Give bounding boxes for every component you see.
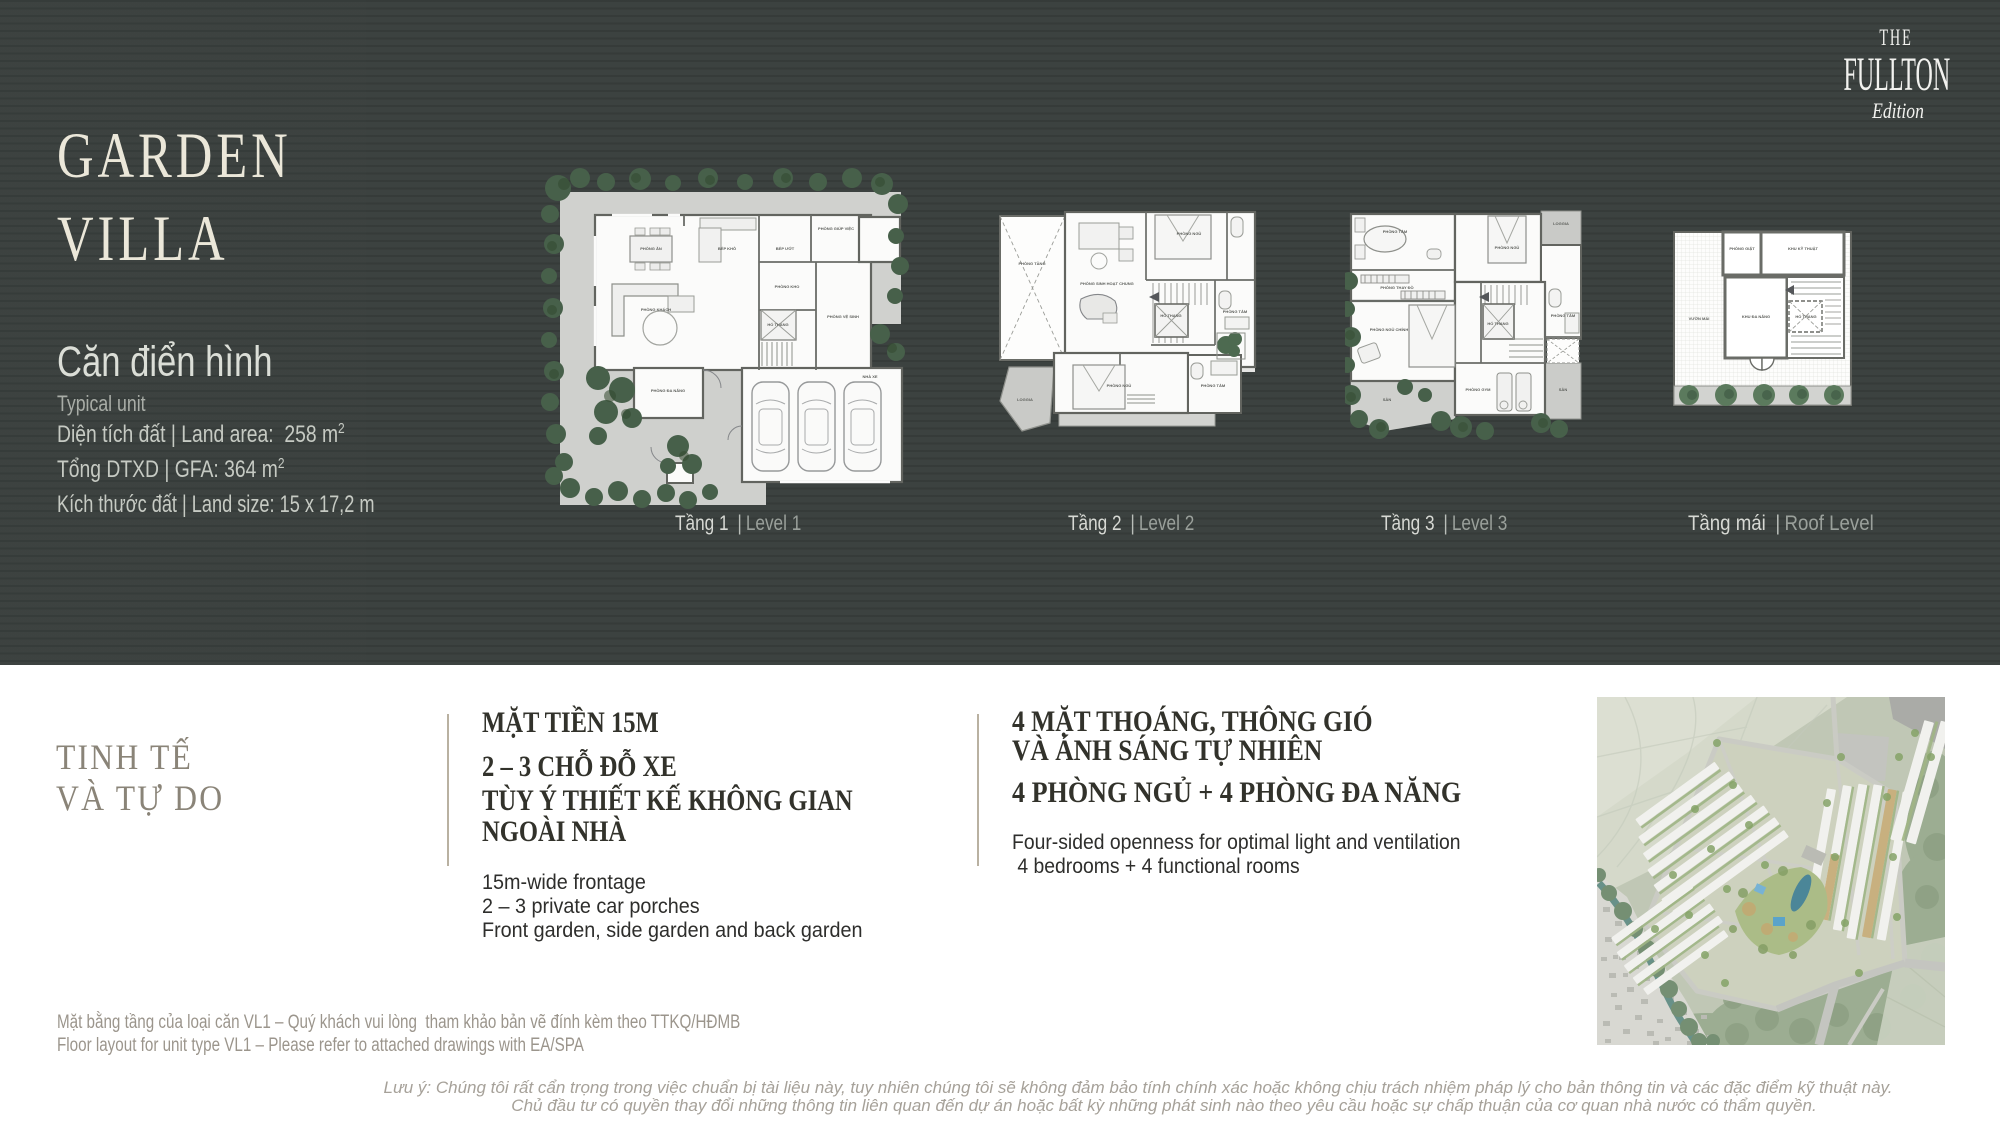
svg-text:PHÒNG GYM: PHÒNG GYM	[1466, 387, 1492, 392]
svg-text:NHÀ XE: NHÀ XE	[862, 374, 877, 379]
svg-text:PHÒNG NGỦ: PHÒNG NGỦ	[1177, 231, 1202, 236]
svg-text:PHÒNG TẮM: PHÒNG TẮM	[1223, 309, 1248, 314]
svg-text:PHÒNG NGỦ: PHÒNG NGỦ	[1495, 245, 1520, 250]
svg-text:PHÒNG ĐA NĂNG: PHÒNG ĐA NĂNG	[651, 388, 685, 393]
svg-text:PHÒNG NGỦ: PHÒNG NGỦ	[1107, 383, 1132, 388]
svg-text:LOGGIA: LOGGIA	[1017, 397, 1033, 402]
svg-text:KHU KỸ THUẬT: KHU KỸ THUẬT	[1788, 246, 1819, 251]
svg-text:HỐ THANG: HỐ THANG	[1160, 313, 1181, 318]
svg-text:PHÒNG GIẶT: PHÒNG GIẶT	[1729, 246, 1755, 251]
svg-text:PHÒNG THAY ĐỒ: PHÒNG THAY ĐỒ	[1380, 285, 1413, 290]
svg-text:KHU ĐA NĂNG: KHU ĐA NĂNG	[1742, 314, 1770, 319]
svg-text:HỐ THANG: HỐ THANG	[1487, 321, 1508, 326]
svg-text:BẾP KHÔ: BẾP KHÔ	[718, 246, 736, 251]
svg-text:PHÒNG TẦNG: PHÒNG TẦNG	[1018, 261, 1045, 266]
svg-text:VƯỜN MÁI: VƯỜN MÁI	[1689, 316, 1710, 321]
svg-text:PHÒNG VỆ SINH: PHÒNG VỆ SINH	[827, 314, 859, 319]
svg-text:SÂN: SÂN	[1383, 397, 1392, 402]
svg-text:PHÒNG GIÚP VIỆC: PHÒNG GIÚP VIỆC	[818, 226, 854, 231]
svg-text:PHÒNG KHÁCH: PHÒNG KHÁCH	[641, 307, 671, 312]
svg-text:PHÒNG TẮM: PHÒNG TẮM	[1383, 229, 1408, 234]
svg-text:PHÒNG KHO: PHÒNG KHO	[775, 284, 800, 289]
svg-text:HỐ THANG: HỐ THANG	[1795, 314, 1816, 319]
svg-text:SÂN: SÂN	[1559, 387, 1568, 392]
svg-text:PHÒNG TẮM: PHÒNG TẮM	[1551, 313, 1576, 318]
svg-text:PHÒNG TẮM: PHÒNG TẮM	[1201, 383, 1226, 388]
svg-text:BẾP ƯỚT: BẾP ƯỚT	[776, 246, 795, 251]
svg-text:PHÒNG ĂN: PHÒNG ĂN	[640, 246, 662, 251]
svg-text:LOGGIA: LOGGIA	[1553, 221, 1569, 226]
svg-text:PHÒNG SINH HOẠT CHUNG: PHÒNG SINH HOẠT CHUNG	[1080, 281, 1134, 286]
svg-text:PHÒNG NGỦ CHÍNH: PHÒNG NGỦ CHÍNH	[1370, 327, 1409, 332]
svg-text:HỐ THANG: HỐ THANG	[767, 322, 788, 327]
